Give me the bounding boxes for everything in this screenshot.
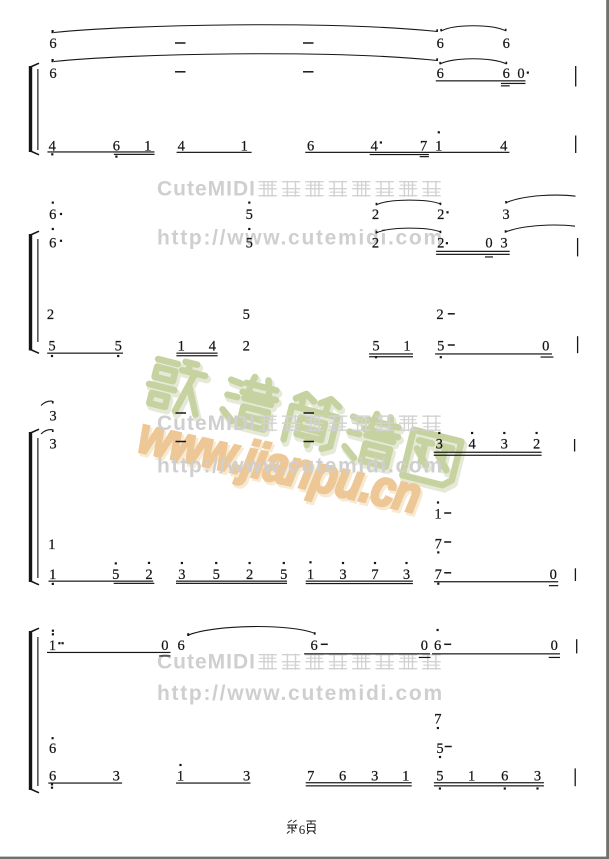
svg-text:0: 0 <box>550 567 557 583</box>
svg-text:2: 2 <box>436 307 443 323</box>
svg-text:3: 3 <box>436 437 443 453</box>
svg-text:http://www.cutemidi.com: http://www.cutemidi.com <box>157 682 444 705</box>
svg-text:6: 6 <box>49 207 56 223</box>
svg-text:2: 2 <box>372 207 379 223</box>
svg-text:0: 0 <box>551 638 558 654</box>
svg-text:3: 3 <box>500 236 507 252</box>
svg-text:6: 6 <box>434 638 441 654</box>
svg-text:5: 5 <box>48 339 55 355</box>
svg-text:3: 3 <box>501 437 508 453</box>
svg-text:0: 0 <box>542 339 549 355</box>
svg-text:1: 1 <box>403 339 410 355</box>
svg-text:3: 3 <box>534 769 541 785</box>
svg-text:6: 6 <box>503 36 510 52</box>
svg-text:6: 6 <box>49 236 56 252</box>
svg-text:2: 2 <box>533 437 540 453</box>
svg-text:1: 1 <box>48 537 55 553</box>
svg-text:7: 7 <box>307 769 314 785</box>
svg-text:7: 7 <box>435 537 442 553</box>
svg-text:5: 5 <box>246 207 253 223</box>
svg-text:1: 1 <box>178 339 185 355</box>
svg-text:http://www.cutemidi.com: http://www.cutemidi.com <box>157 455 444 478</box>
svg-text:6: 6 <box>310 638 317 654</box>
svg-text:1: 1 <box>177 769 184 785</box>
svg-text:6: 6 <box>49 66 56 82</box>
svg-text:1: 1 <box>468 769 475 785</box>
svg-text:0: 0 <box>421 638 428 654</box>
svg-text:3: 3 <box>502 207 509 223</box>
svg-text:1: 1 <box>402 769 409 785</box>
svg-text:5: 5 <box>246 236 253 252</box>
svg-text:0: 0 <box>485 236 492 252</box>
svg-text:0: 0 <box>517 66 524 82</box>
svg-text:3: 3 <box>49 437 56 453</box>
svg-text:6: 6 <box>437 66 444 82</box>
svg-text:6: 6 <box>501 769 508 785</box>
svg-text:6: 6 <box>49 741 56 757</box>
svg-text:4: 4 <box>209 339 217 355</box>
svg-text:7: 7 <box>434 712 441 728</box>
svg-text:0: 0 <box>161 638 168 654</box>
svg-text:1: 1 <box>49 638 56 654</box>
svg-text:6: 6 <box>503 66 510 82</box>
svg-text:2: 2 <box>437 236 444 252</box>
svg-text:6: 6 <box>49 36 56 52</box>
svg-text:6: 6 <box>177 638 184 654</box>
svg-text:6: 6 <box>49 769 56 785</box>
svg-text:5: 5 <box>436 741 443 757</box>
svg-text:5: 5 <box>115 339 122 355</box>
svg-text:5: 5 <box>436 769 443 785</box>
svg-text:3: 3 <box>243 769 250 785</box>
svg-text:CuteMIDI: CuteMIDI <box>157 651 256 674</box>
svg-text:5: 5 <box>437 339 444 355</box>
svg-text:6: 6 <box>339 769 346 785</box>
svg-text:2: 2 <box>372 236 379 252</box>
svg-text:5: 5 <box>372 339 379 355</box>
svg-text:1: 1 <box>434 507 441 523</box>
svg-text:2: 2 <box>47 307 54 323</box>
svg-text:7: 7 <box>435 567 442 583</box>
svg-text:3: 3 <box>49 409 56 425</box>
svg-text:CuteMIDI: CuteMIDI <box>157 178 256 201</box>
svg-text:4: 4 <box>468 437 476 453</box>
svg-text:http://www.cutemidi.com: http://www.cutemidi.com <box>157 227 444 250</box>
svg-text:2: 2 <box>243 339 250 355</box>
svg-text:6: 6 <box>437 36 444 52</box>
svg-text:CuteMIDI: CuteMIDI <box>157 412 256 435</box>
svg-text:6: 6 <box>299 822 306 837</box>
svg-text:2: 2 <box>437 207 444 223</box>
svg-text:3: 3 <box>371 769 378 785</box>
svg-text:5: 5 <box>243 307 250 323</box>
svg-text:3: 3 <box>113 769 120 785</box>
